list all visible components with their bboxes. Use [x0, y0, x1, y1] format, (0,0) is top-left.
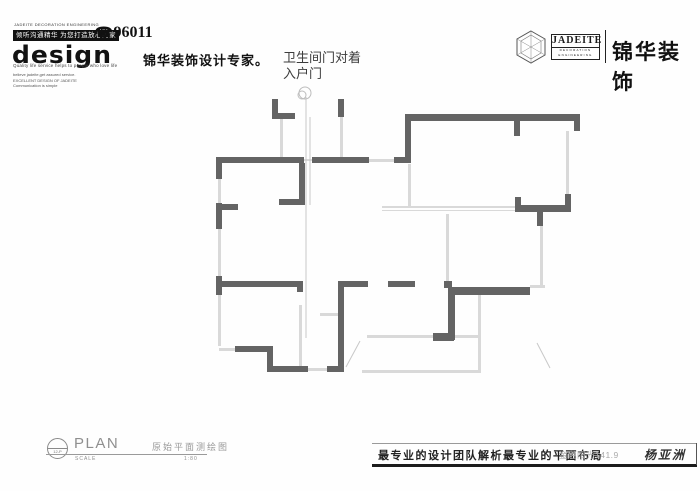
window-segment — [304, 159, 312, 161]
wall-segment — [267, 366, 308, 372]
wall-segment — [272, 99, 278, 119]
wall-segment — [565, 194, 571, 212]
wall-segment — [216, 157, 304, 163]
window-segment — [446, 214, 449, 281]
tagline-en: Quality life service helps to people who… — [13, 63, 117, 68]
window-segment — [218, 295, 221, 346]
wall-segment — [279, 199, 305, 205]
wall-segment — [338, 99, 344, 117]
window-segment — [218, 229, 221, 276]
window-segment — [478, 294, 481, 372]
window-segment — [382, 206, 515, 208]
window-segment — [540, 226, 543, 285]
wall-segment — [388, 281, 415, 287]
wall-segment — [344, 281, 368, 287]
service-lines: believe jadeite,get assured service. EXC… — [13, 72, 77, 89]
service-line: Communication is simple — [13, 83, 77, 89]
jadeite-logo-text: JADEITE — [552, 35, 599, 48]
wall-segment — [433, 333, 454, 341]
wall-segment — [267, 352, 273, 372]
scale-label: SCALE — [75, 456, 96, 462]
window-segment — [382, 210, 515, 211]
wall-segment — [222, 204, 238, 210]
window-segment — [219, 348, 235, 351]
titleblock-rule — [46, 454, 207, 455]
sketch-circle — [299, 87, 311, 99]
plan-label: PLAN — [74, 435, 119, 452]
window-segment — [408, 164, 411, 207]
wall-segment — [216, 276, 222, 295]
wall-segment — [222, 281, 303, 287]
wall-segment — [448, 287, 530, 295]
wall-segment — [216, 203, 222, 229]
window-segment — [367, 335, 433, 338]
window-segment — [368, 159, 394, 162]
sketch-circle — [298, 91, 306, 99]
window-segment — [566, 131, 569, 194]
window-segment — [308, 368, 328, 371]
company-tiny-caption: JADEITE DECORATION ENGINEERING — [14, 22, 99, 27]
footer-end-tick — [696, 443, 697, 465]
annotation-line1: 卫生间门对着 — [283, 50, 361, 66]
phone-number-text: 96011 — [113, 24, 152, 41]
window-segment — [218, 179, 221, 203]
wall-segment — [537, 212, 543, 226]
wall-segment — [272, 113, 295, 119]
drawing-sheet: { "header": { "left": { "tiny_top": "JAD… — [0, 0, 700, 491]
window-segment — [455, 335, 480, 338]
window-segment — [299, 305, 302, 366]
wall-segment — [514, 121, 520, 136]
sheet-number-bubble: 12-P — [47, 438, 68, 459]
wall-segment — [297, 281, 303, 292]
wall-segment — [515, 205, 571, 212]
annotation-line2: 入户门 — [283, 66, 361, 82]
jadeite-logo-box: JADEITE DECORATION ENGINEERING — [551, 34, 600, 60]
window-segment — [530, 285, 545, 288]
designer-name: 杨亚洲 — [644, 446, 686, 463]
wall-segment — [574, 114, 580, 131]
wall-segment — [216, 157, 222, 179]
window-segment — [280, 119, 283, 157]
wall-segment — [327, 366, 344, 372]
wall-segment — [405, 114, 411, 163]
jadeite-logo-sub2: ENGINEERING — [552, 53, 599, 58]
wall-segment — [312, 157, 369, 163]
wall-segment — [444, 281, 452, 288]
wall-segment — [394, 157, 411, 163]
wall-segment — [299, 163, 305, 205]
window-segment — [362, 370, 481, 373]
brand-name-cn: 锦华装饰 — [612, 36, 700, 96]
brand-headline-cn: 锦华装饰设计专家。 — [143, 50, 269, 69]
drawing-title-cn: 原始平面测绘图 — [152, 440, 229, 453]
wall-segment — [235, 346, 273, 352]
phone-icon: ☎ — [95, 26, 112, 41]
jadeite-gem-icon — [516, 30, 546, 64]
logo-divider — [605, 30, 606, 63]
window-segment — [340, 117, 343, 157]
plan-annotation: 卫生间门对着 入户门 — [283, 50, 361, 82]
footer-top-rule — [372, 443, 697, 444]
wall-segment — [515, 197, 521, 205]
wall-segment — [448, 295, 455, 340]
service-line: believe jadeite,get assured service. — [13, 72, 77, 78]
phone-number: ☎96011 — [95, 24, 153, 42]
scale-value: 1:80 — [184, 456, 198, 462]
window-segment — [320, 313, 338, 316]
footer-bottom-rule — [372, 464, 697, 467]
leader-line — [346, 341, 360, 367]
leader-line — [537, 343, 550, 368]
wall-segment — [408, 114, 576, 121]
project-name: 金色阳光141.9 — [559, 449, 619, 461]
wall-segment — [338, 281, 344, 372]
